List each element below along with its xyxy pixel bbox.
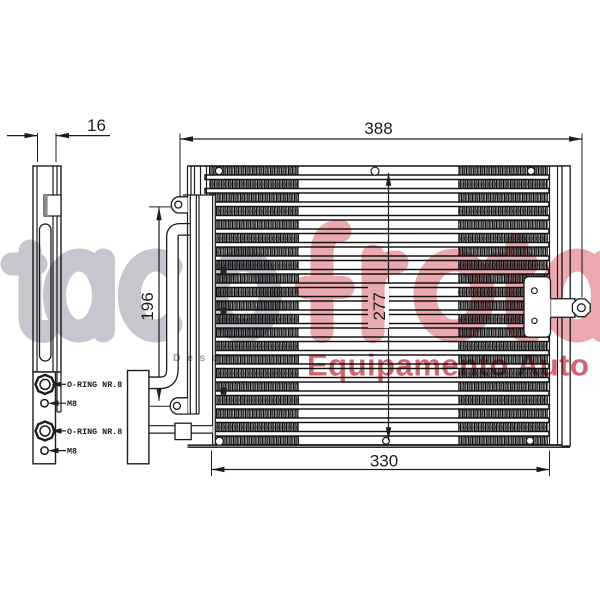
svg-text:330: 330 [370, 452, 398, 471]
svg-text:Equipamento Auto: Equipamento Auto [307, 348, 589, 383]
svg-text:Desde: Desde [173, 352, 237, 364]
svg-text:O-RING NR.8: O-RING NR.8 [67, 427, 122, 437]
svg-text:M8: M8 [67, 447, 77, 457]
svg-text:O-RING NR.8: O-RING NR.8 [67, 380, 122, 390]
svg-text:16: 16 [87, 116, 106, 135]
svg-text:388: 388 [364, 119, 392, 138]
svg-text:M8: M8 [67, 399, 77, 409]
